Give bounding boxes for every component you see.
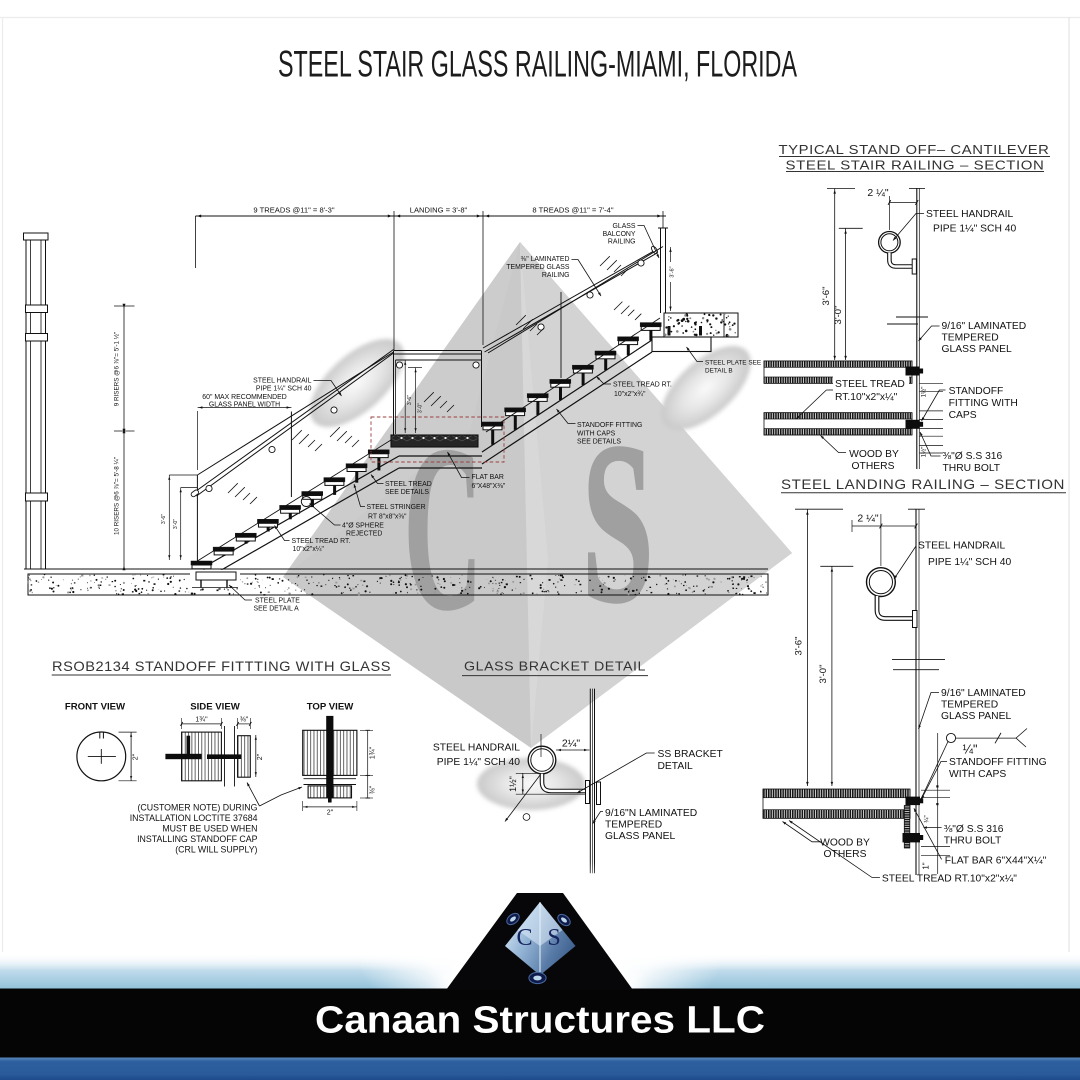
svg-text:¼": ¼"	[924, 815, 931, 822]
svg-text:⅜" LAMINATED: ⅜" LAMINATED	[520, 256, 569, 263]
svg-text:DETAIL B: DETAIL B	[705, 368, 733, 375]
svg-text:STANDOFF FITTING: STANDOFF FITTING	[577, 422, 642, 429]
svg-text:STEEL TREAD: STEEL TREAD	[835, 379, 905, 390]
svg-text:LANDING = 3'-8": LANDING = 3'-8"	[410, 206, 468, 215]
svg-text:STEEL STAIR RAILING – SECT: STEEL STAIR RAILING – SECTION	[786, 159, 1045, 173]
svg-text:CAPS: CAPS	[949, 410, 977, 421]
svg-text:INSTALLING STANDOFF CAP: INSTALLING STANDOFF CAP	[137, 834, 258, 844]
svg-text:RSOB2134 STANDOFF FITTTING: RSOB2134 STANDOFF FITTTING WITH GLASS	[52, 659, 391, 674]
svg-text:THRU BOLT: THRU BOLT	[943, 463, 1001, 474]
svg-text:3'-6": 3'-6"	[161, 514, 167, 524]
svg-text:WOOD BY: WOOD BY	[820, 838, 870, 849]
svg-text:REJECTED: REJECTED	[346, 531, 382, 538]
svg-text:GLASS PANEL: GLASS PANEL	[605, 831, 675, 842]
svg-text:STANDOFF: STANDOFF	[949, 386, 1004, 397]
svg-text:FITTING WITH: FITTING WITH	[949, 398, 1018, 409]
svg-text:2": 2"	[327, 810, 334, 817]
svg-text:STEEL TREAD RT.10"x2"x¼": STEEL TREAD RT.10"x2"x¼"	[882, 873, 1017, 885]
svg-text:2¼": 2¼"	[562, 738, 581, 750]
svg-text:⅜": ⅜"	[370, 785, 377, 794]
svg-text:STEEL TREAD RT.: STEEL TREAD RT.	[613, 382, 672, 389]
svg-text:PIPE 1¼" SCH 40: PIPE 1¼" SCH 40	[928, 556, 1011, 568]
svg-text:RT 8"x8"x⅜": RT 8"x8"x⅜"	[368, 514, 407, 521]
svg-text:1¾": 1¾"	[370, 746, 377, 759]
svg-text:STEEL STAIR GLASS RAILING-MIAM: STEEL STAIR GLASS RAILING-MIAMI, FLORIDA	[278, 44, 797, 85]
svg-text:STEEL HANDRAIL: STEEL HANDRAIL	[253, 378, 311, 385]
svg-text:GLASS: GLASS	[613, 223, 636, 230]
svg-text:THRU BOLT: THRU BOLT	[944, 836, 1002, 847]
svg-text:WOOD BY: WOOD BY	[849, 449, 899, 460]
svg-text:RAILING: RAILING	[542, 272, 570, 279]
svg-text:RAILING: RAILING	[608, 239, 636, 246]
svg-text:9/16"N LAMINATED: 9/16"N LAMINATED	[605, 808, 697, 819]
svg-text:3'-0": 3'-0"	[833, 306, 844, 325]
svg-text:STEEL TREAD RT.: STEEL TREAD RT.	[292, 538, 351, 545]
svg-text:TOP VIEW: TOP VIEW	[307, 702, 355, 713]
svg-text:TEMPERED GLASS: TEMPERED GLASS	[506, 264, 570, 271]
svg-text:SEE DETAILS: SEE DETAILS	[385, 489, 429, 496]
svg-text:TEMPERED: TEMPERED	[942, 333, 999, 344]
svg-text:10"x2"x¾": 10"x2"x¾"	[614, 391, 646, 398]
svg-text:C: C	[516, 925, 532, 951]
svg-text:6"X48"X⅜": 6"X48"X⅜"	[472, 483, 506, 490]
svg-text:STEEL LANDING RAILING – SE: STEEL LANDING RAILING – SECTION	[781, 477, 1065, 492]
svg-text:3'-6": 3'-6"	[670, 266, 676, 277]
svg-text:PIPE 1¼" SCH 40: PIPE 1¼" SCH 40	[933, 223, 1016, 235]
svg-text:9/16" LAMINATED: 9/16" LAMINATED	[941, 688, 1026, 699]
svg-text:4"Ø SPHERE: 4"Ø SPHERE	[342, 523, 384, 530]
svg-text:INSTALLATION LOCTITE 37684: INSTALLATION LOCTITE 37684	[130, 813, 258, 823]
svg-text:MUST BE USED WHEN: MUST BE USED WHEN	[162, 824, 257, 834]
svg-text:OTHERS: OTHERS	[824, 849, 867, 860]
svg-text:WITH CAPS: WITH CAPS	[577, 431, 616, 438]
svg-text:TEMPERED: TEMPERED	[941, 700, 998, 711]
svg-text:2 ¼": 2 ¼"	[867, 187, 889, 199]
svg-text:1¾": 1¾"	[195, 717, 208, 724]
svg-text:2": 2"	[133, 753, 140, 760]
svg-text:3'-6": 3'-6"	[821, 287, 832, 306]
svg-text:STEEL HANDRAIL: STEEL HANDRAIL	[926, 209, 1013, 220]
svg-text:2": 2"	[257, 753, 264, 760]
svg-text:DETAIL: DETAIL	[658, 761, 694, 772]
svg-text:OTHERS: OTHERS	[852, 461, 895, 472]
svg-text:STEEL PLATE SEE: STEEL PLATE SEE	[705, 360, 761, 367]
svg-text:10"x2"x¼": 10"x2"x¼"	[293, 546, 325, 553]
svg-text:STEEL PLATE: STEEL PLATE	[255, 598, 300, 605]
svg-text:S: S	[547, 925, 560, 951]
svg-text:9/16" LAMINATED: 9/16" LAMINATED	[942, 321, 1027, 332]
svg-text:⅜"Ø S.S 316: ⅜"Ø S.S 316	[944, 824, 1004, 835]
svg-text:(CRL WILL SUPPLY): (CRL WILL SUPPLY)	[175, 845, 257, 855]
svg-text:STEEL HANDRAIL: STEEL HANDRAIL	[433, 743, 520, 754]
svg-text:RT.10"x2"x¼": RT.10"x2"x¼"	[835, 391, 898, 403]
svg-text:(CUSTOMER NOTE) DURING: (CUSTOMER NOTE) DURING	[137, 803, 257, 813]
svg-text:BALCONY: BALCONY	[603, 231, 636, 238]
svg-text:Canaan Structures LLC: Canaan Structures LLC	[315, 1000, 765, 1042]
svg-text:9 TREADS @11" = 8'-3": 9 TREADS @11" = 8'-3"	[253, 206, 334, 215]
svg-text:60" MAX RECOMMENDED: 60" MAX RECOMMENDED	[202, 394, 286, 401]
svg-text:¼": ¼"	[963, 743, 978, 757]
svg-text:STANDOFF FITTING: STANDOFF FITTING	[949, 757, 1047, 768]
svg-text:9 RISERS @6 ⅞"= 5'-1 ½": 9 RISERS @6 ⅞"= 5'-1 ½"	[113, 332, 121, 407]
svg-text:STEEL STRINGER: STEEL STRINGER	[367, 504, 426, 511]
svg-text:2 ¼": 2 ¼"	[857, 513, 879, 525]
svg-text:3'-6": 3'-6"	[794, 637, 805, 656]
svg-text:FRONT VIEW: FRONT VIEW	[65, 702, 126, 713]
svg-text:3'-0": 3'-0"	[818, 665, 829, 684]
svg-text:1½": 1½"	[921, 387, 928, 398]
svg-text:⅜"Ø S.S 316: ⅜"Ø S.S 316	[943, 451, 1003, 462]
svg-text:TYPICAL STAND OFF– CANTILEV: TYPICAL STAND OFF– CANTILEVER	[779, 143, 1050, 157]
svg-text:FLAT BAR: FLAT BAR	[472, 474, 504, 481]
svg-text:SIDE VIEW: SIDE VIEW	[190, 702, 241, 713]
svg-text:SEE DETAILS: SEE DETAILS	[577, 439, 621, 446]
svg-text:FLAT BAR 6"X44"X¼": FLAT BAR 6"X44"X¼"	[945, 855, 1047, 867]
svg-text:TEMPERED: TEMPERED	[605, 820, 662, 831]
svg-text:SS BRACKET: SS BRACKET	[658, 749, 724, 760]
svg-text:STEEL HANDRAIL: STEEL HANDRAIL	[918, 541, 1005, 552]
svg-text:3'-0": 3'-0"	[417, 403, 423, 413]
svg-text:STEEL TREAD: STEEL TREAD	[385, 481, 432, 488]
svg-text:1½": 1½"	[921, 447, 928, 458]
svg-text:PIPE 1¼" SCH 40: PIPE 1¼" SCH 40	[437, 756, 520, 768]
svg-text:GLASS BRACKET DETAIL: GLASS BRACKET DETAIL	[464, 659, 646, 674]
svg-text:⅜": ⅜"	[240, 717, 249, 724]
svg-text:3'-6": 3'-6"	[407, 395, 413, 405]
svg-text:1½": 1½"	[508, 776, 518, 792]
svg-text:8 TREADS @11" = 7'-4": 8 TREADS @11" = 7'-4"	[532, 206, 613, 215]
svg-text:1": 1"	[922, 862, 931, 869]
svg-text:GLASS PANEL: GLASS PANEL	[942, 344, 1012, 355]
svg-text:PIPE 1¼" SCH 40: PIPE 1¼" SCH 40	[256, 386, 312, 393]
svg-text:SEE DETAIL A: SEE DETAIL A	[254, 606, 300, 613]
svg-text:WITH CAPS: WITH CAPS	[949, 769, 1006, 780]
svg-text:10 RISERS @6 ⅞"= 5'-8 ¼": 10 RISERS @6 ⅞"= 5'-8 ¼"	[114, 457, 121, 535]
svg-text:GLASS PANEL: GLASS PANEL	[941, 711, 1011, 722]
svg-text:3'-0": 3'-0"	[173, 519, 179, 529]
